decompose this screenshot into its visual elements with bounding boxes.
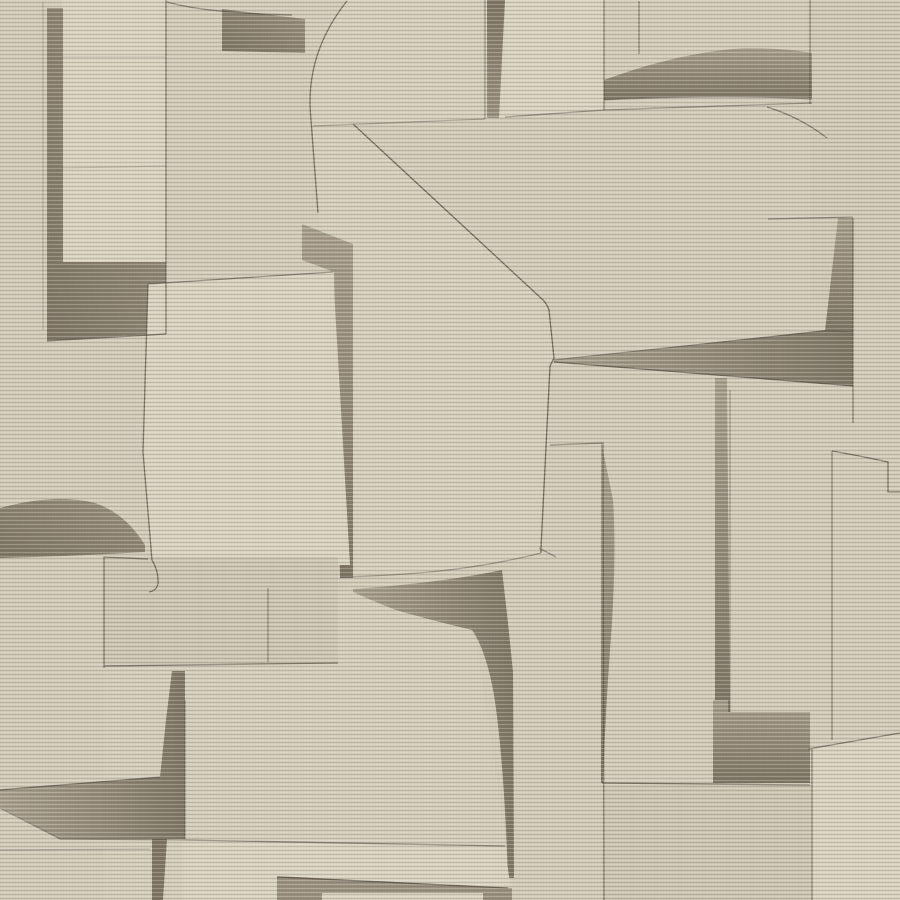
wallpaper-canvas xyxy=(0,0,900,900)
wallpaper-pattern xyxy=(0,0,900,900)
thread-texture-overlay xyxy=(0,0,900,900)
